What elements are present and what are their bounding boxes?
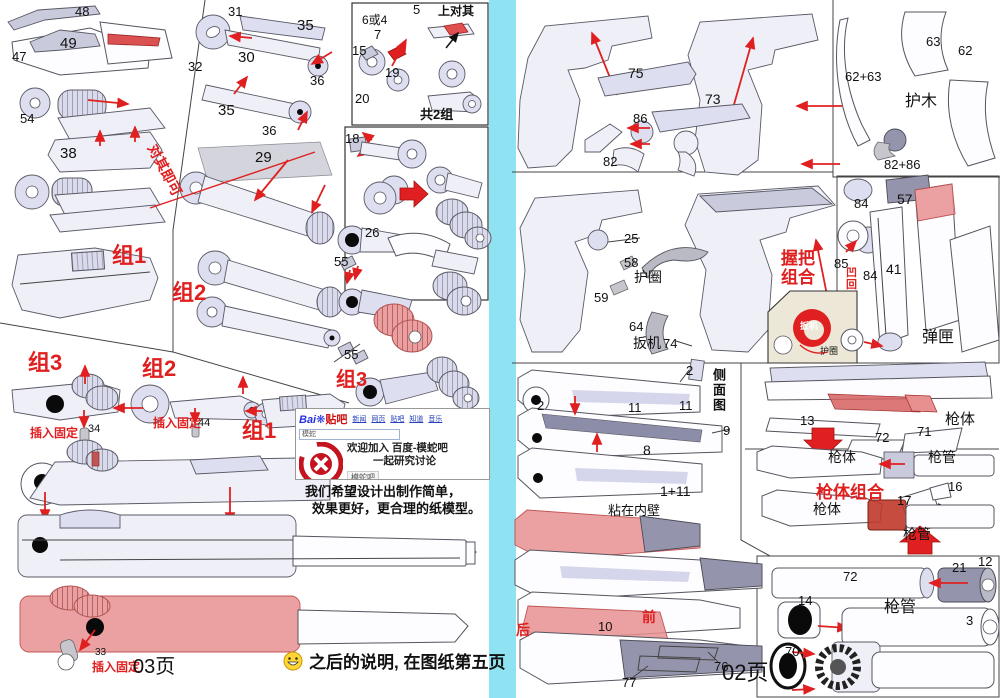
search-input[interactable]: 模蛇 — [299, 429, 400, 440]
baidu-paw-icon: ❋ — [316, 414, 325, 426]
instruction-sheet: 48474954383132303536353629对其即可组1组2组3组2组1… — [0, 0, 1000, 698]
ad-nav-item[interactable]: 网页 — [371, 414, 385, 424]
right-page-drawing — [512, 0, 1000, 697]
footer-note: 之后的说明, 在图纸第五页 — [283, 648, 505, 673]
left-page-number: 03页 — [133, 650, 175, 679]
ad-welcome-line1: 欢迎加入 百度-模蛇吧 — [347, 442, 448, 455]
ad-welcome-line2: 一起研究讨论 — [373, 455, 448, 468]
left-page-drawing — [0, 0, 491, 670]
baidu-logo: Bai❋贴吧 — [299, 411, 347, 427]
baidu-tieba-ad: Bai❋贴吧 新闻网页贴吧知道音乐 模蛇 欢迎加入 百度-模蛇吧 一起研究讨论 … — [295, 408, 490, 480]
footer-note-text: 之后的说明, 在图纸第五页 — [309, 648, 505, 673]
ad-nav-item[interactable]: 音乐 — [428, 414, 442, 424]
right-page-number: 02页 — [722, 655, 768, 687]
smiley-icon — [283, 651, 303, 671]
page-divider — [489, 0, 516, 698]
forum-link[interactable]: 模蛇吧 — [347, 471, 379, 480]
ad-nav-item[interactable]: 贴吧 — [390, 414, 404, 424]
ad-nav: 新闻网页贴吧知道音乐 — [352, 414, 442, 424]
ad-nav-item[interactable]: 新闻 — [352, 414, 366, 424]
diagram-artwork — [0, 0, 1000, 698]
design-caption-line2: 效果更好，更合理的纸模型。 — [312, 498, 481, 517]
ad-nav-item[interactable]: 知道 — [409, 414, 423, 424]
forum-badge-icon — [299, 442, 343, 480]
